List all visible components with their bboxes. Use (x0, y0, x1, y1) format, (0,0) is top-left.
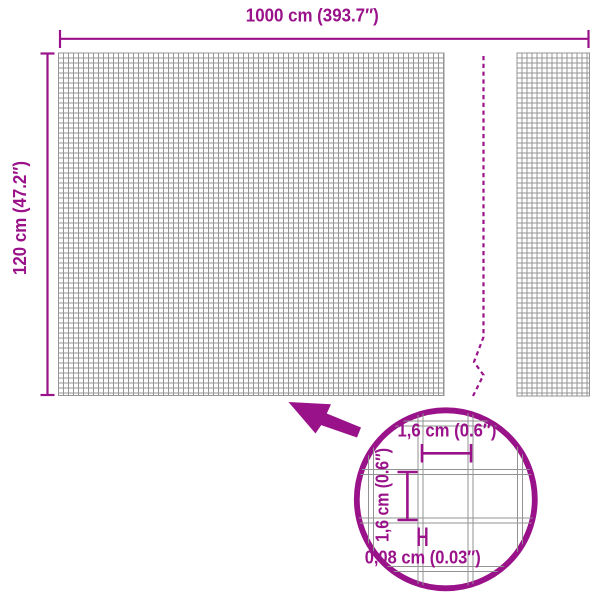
svg-text:1,6 cm (0.6″): 1,6 cm (0.6″) (373, 448, 393, 542)
svg-text:120 cm (47.2″): 120 cm (47.2″) (10, 161, 30, 275)
svg-text:0,08 cm (0.03″): 0,08 cm (0.03″) (365, 548, 481, 568)
svg-text:1,6 cm (0.6″): 1,6 cm (0.6″) (398, 421, 497, 441)
svg-text:1000 cm (393.7″): 1000 cm (393.7″) (246, 6, 379, 26)
